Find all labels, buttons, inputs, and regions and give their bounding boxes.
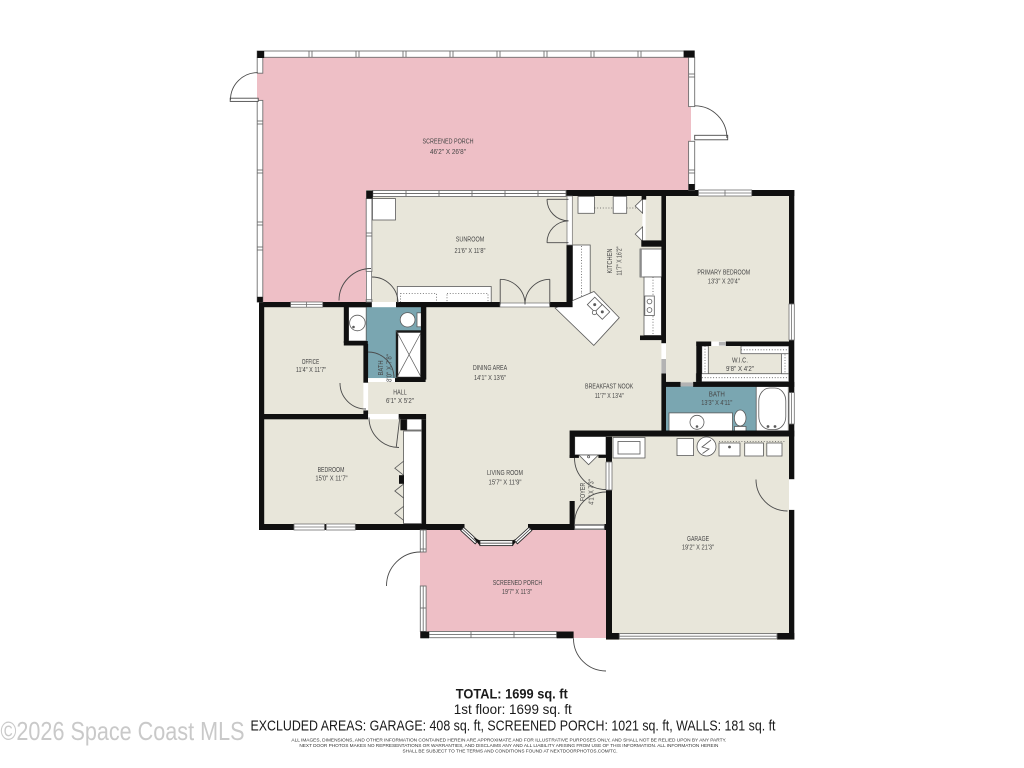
svg-text:19'2" X 21'3": 19'2" X 21'3" <box>682 543 715 552</box>
svg-text:9'8" X 4'2": 9'8" X 4'2" <box>726 364 754 373</box>
svg-text:KITCHEN: KITCHEN <box>605 249 614 274</box>
svg-text:15'0" X 11'7": 15'0" X 11'7" <box>315 473 348 482</box>
svg-text:SUNROOM: SUNROOM <box>456 235 485 244</box>
svg-text:EXCLUDED AREAS: GARAGE: 408 sq: EXCLUDED AREAS: GARAGE: 408 sq. ft, SCRE… <box>251 718 777 735</box>
svg-text:6'1" X 5'2": 6'1" X 5'2" <box>386 396 414 405</box>
svg-text:11'7" X 13'4": 11'7" X 13'4" <box>595 391 624 400</box>
svg-text:11'4" X 11'7": 11'4" X 11'7" <box>296 365 327 374</box>
svg-text:NEXT DOOR PHOTOS MAKES NO REPR: NEXT DOOR PHOTOS MAKES NO REPRESENTATION… <box>299 743 718 749</box>
svg-text:19'7" X 11'3": 19'7" X 11'3" <box>502 587 532 596</box>
svg-text:TOTAL: 1699 sq. ft: TOTAL: 1699 sq. ft <box>456 686 568 702</box>
svg-text:14'1" X 13'6": 14'1" X 13'6" <box>474 373 506 382</box>
svg-text:21'6" X 11'8": 21'6" X 11'8" <box>455 246 486 255</box>
svg-text:DINING AREA: DINING AREA <box>473 363 507 372</box>
svg-text:4'1" X 7'3": 4'1" X 7'3" <box>586 479 595 505</box>
svg-text:1st floor: 1699 sq. ft: 1st floor: 1699 sq. ft <box>454 701 572 717</box>
svg-text:BREAKFAST NOOK: BREAKFAST NOOK <box>585 382 633 391</box>
svg-text:11'7" X 16'2": 11'7" X 16'2" <box>614 246 623 275</box>
svg-text:ALL IMAGES, DIMENSIONS, AND OT: ALL IMAGES, DIMENSIONS, AND OTHER INFORM… <box>291 738 726 744</box>
svg-text:©2026 Space Coast MLS: ©2026 Space Coast MLS <box>1 716 245 746</box>
svg-text:PRIMARY BEDROOM: PRIMARY BEDROOM <box>697 268 750 277</box>
svg-text:SCREENED PORCH: SCREENED PORCH <box>423 137 474 146</box>
svg-text:15'7" X 11'9": 15'7" X 11'9" <box>489 478 522 487</box>
svg-text:LIVING ROOM: LIVING ROOM <box>487 468 523 477</box>
svg-text:8'0" X 7'8": 8'0" X 7'8" <box>385 354 394 382</box>
svg-text:SCREENED PORCH: SCREENED PORCH <box>493 578 542 587</box>
svg-text:13'3" X 20'4": 13'3" X 20'4" <box>708 277 740 286</box>
svg-text:SHALL BE SUBJECT TO THE TERMS: SHALL BE SUBJECT TO THE TERMS AND CONDIT… <box>403 749 618 755</box>
svg-text:46'2" X 26'8": 46'2" X 26'8" <box>430 147 466 156</box>
svg-text:13'3" X 4'11": 13'3" X 4'11" <box>701 398 732 407</box>
